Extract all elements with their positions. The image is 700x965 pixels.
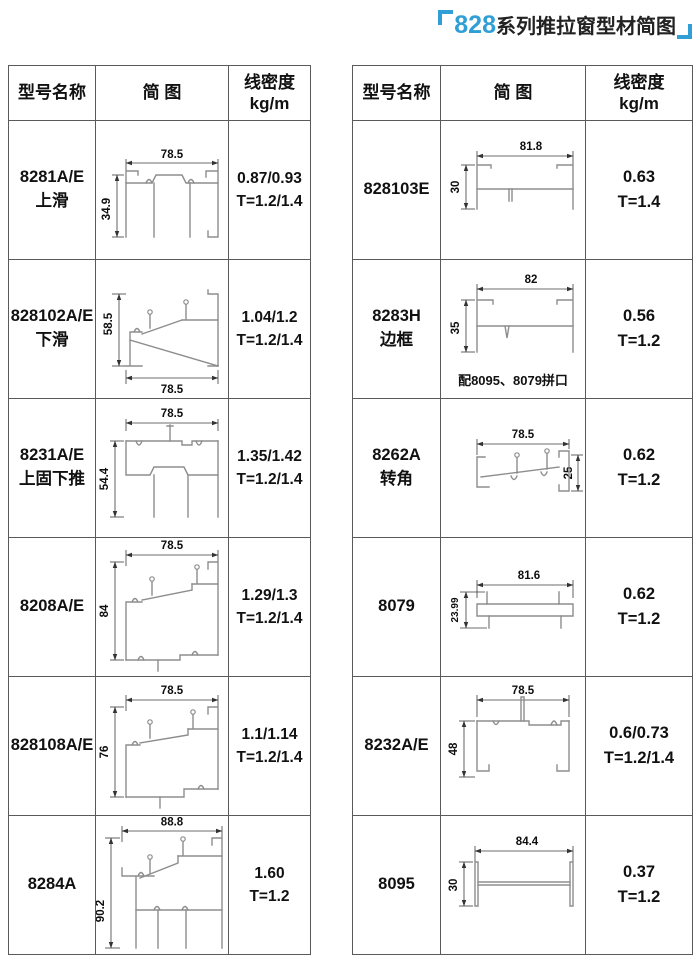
density-cell: 0.63 T=1.4 [586, 121, 693, 260]
density-cell: 1.29/1.3 T=1.2/1.4 [229, 538, 311, 677]
profile-diagram-828103: 81.8 30 [441, 121, 585, 259]
thickness-value: T=1.2 [249, 885, 289, 908]
profile-outline [477, 592, 573, 628]
thickness-value: T=1.2 [618, 885, 661, 910]
height-dim-label: 58.5 [103, 312, 115, 335]
profile-outline [126, 425, 218, 517]
height-dim-label: 30 [448, 879, 460, 892]
density-value: 1.04/1.2 [241, 306, 297, 329]
density-cell: 0.87/0.93 T=1.2/1.4 [229, 121, 311, 260]
model-name: 8281A/E [20, 166, 84, 190]
density-cell: 0.62 T=1.2 [586, 399, 693, 538]
density-cell: 0.56 T=1.2 [586, 260, 693, 399]
profile-diagram-8284: 88.8 90.2 [96, 816, 228, 954]
dimension-lines [112, 294, 218, 384]
diagram-cell: 78.5 25 [441, 399, 586, 538]
thickness-value: T=1.2 [618, 329, 661, 354]
title-corner-left-icon [438, 10, 453, 25]
page-title: 828系列推拉窗型材简图 [438, 10, 692, 44]
dimension-lines [459, 695, 569, 777]
title-corner-right-icon [677, 24, 692, 39]
header-density-label: 线密度 [614, 72, 665, 93]
header-model: 型号名称 [9, 66, 96, 121]
density-cell: 0.37 T=1.2 [586, 816, 693, 955]
height-dim-label: 84 [99, 604, 111, 617]
thickness-value: T=1.2 [618, 468, 661, 493]
model-subtitle: 上固下推 [19, 468, 85, 492]
header-density-unit: kg/m [619, 93, 659, 114]
profile-outline [124, 290, 218, 366]
width-dim-label: 78.5 [512, 429, 535, 441]
header-diagram: 简 图 [96, 66, 229, 121]
width-dim-label: 78.5 [161, 685, 184, 697]
diagram-note: 配8095、8079拼口 [441, 370, 585, 389]
profile-diagram-8262: 78.5 25 [441, 399, 585, 537]
dimension-lines [105, 826, 222, 948]
model-cell: 8283H 边框 [353, 260, 441, 399]
density-value: 0.62 [623, 443, 655, 468]
thickness-value: T=1.2/1.4 [237, 607, 303, 630]
diagram-cell: 78.5 48 [441, 677, 586, 816]
thickness-value: T=1.2/1.4 [237, 468, 303, 491]
profile-diagram-8232: 78.5 48 [441, 677, 585, 815]
diagram-cell: 82 35 配8095、8079拼口 [441, 260, 586, 399]
model-cell: 8079 [353, 538, 441, 677]
profile-diagram-8231: 78.5 54.4 [96, 399, 228, 537]
header-density-unit: kg/m [250, 93, 290, 114]
density-value: 1.29/1.3 [241, 584, 297, 607]
profile-diagram-828108: 78.5 76 [96, 677, 228, 815]
model-cell: 8232A/E [353, 677, 441, 816]
width-dim-label: 78.5 [512, 685, 535, 697]
width-dim-label: 78.5 [161, 540, 184, 552]
diagram-cell: 78.5 84 [96, 538, 229, 677]
width-dim-label: 81.8 [520, 141, 543, 153]
height-dim-label: 30 [450, 181, 462, 194]
model-name: 828103E [363, 178, 429, 202]
model-cell: 828102A/E 下滑 [9, 260, 96, 399]
height-dim-label: 35 [450, 321, 462, 334]
density-value: 1.35/1.42 [237, 445, 302, 468]
header-model: 型号名称 [353, 66, 441, 121]
model-subtitle: 上滑 [36, 190, 69, 214]
model-name: 8232A/E [364, 734, 428, 758]
density-value: 1.1/1.14 [241, 723, 297, 746]
width-dim-label: 78.5 [161, 408, 184, 420]
height-dim-label: 90.2 [96, 900, 107, 922]
model-name: 8262A [372, 444, 421, 468]
diagram-cell: 58.5 78.5 [96, 260, 229, 399]
dimension-lines [459, 846, 573, 906]
profile-outline [126, 562, 218, 671]
density-value: 0.87/0.93 [237, 167, 302, 190]
width-dim-label: 81.6 [518, 570, 540, 582]
profile-outline [126, 171, 218, 237]
diagram-cell: 78.5 34.9 [96, 121, 229, 260]
profile-diagram-8281: 78.5 34.9 [96, 121, 228, 259]
model-subtitle: 边框 [380, 329, 413, 353]
profile-diagram-8208: 78.5 84 [96, 538, 228, 676]
profile-outline [126, 707, 218, 808]
model-cell: 8284A [9, 816, 96, 955]
thickness-value: T=1.2/1.4 [237, 329, 303, 352]
model-cell: 828103E [353, 121, 441, 260]
density-value: 0.6/0.73 [609, 721, 669, 746]
density-value: 0.63 [623, 165, 655, 190]
height-dim-label: 23.99 [450, 597, 461, 622]
profile-outline [122, 837, 222, 948]
model-cell: 828108A/E [9, 677, 96, 816]
height-dim-label: 48 [448, 742, 460, 755]
thickness-value: T=1.2/1.4 [237, 190, 303, 213]
header-density: 线密度 kg/m [229, 66, 311, 121]
thickness-value: T=1.2/1.4 [604, 746, 674, 771]
profile-outline [477, 449, 569, 491]
density-cell: 1.60 T=1.2 [229, 816, 311, 955]
profile-diagram-8095: 84.4 30 [441, 816, 585, 954]
model-subtitle: 下滑 [36, 329, 69, 353]
density-value: 0.62 [623, 582, 655, 607]
height-dim-label: 54.4 [99, 467, 111, 490]
model-name: 8284A [28, 873, 77, 897]
diagram-cell: 81.8 30 [441, 121, 586, 260]
height-dim-label: 34.9 [101, 198, 113, 220]
model-subtitle: 转角 [380, 468, 413, 492]
thickness-value: T=1.2/1.4 [237, 746, 303, 769]
model-name: 828108A/E [11, 734, 94, 758]
model-cell: 8281A/E 上滑 [9, 121, 96, 260]
header-density: 线密度 kg/m [586, 66, 693, 121]
density-cell: 0.62 T=1.2 [586, 538, 693, 677]
model-name: 8231A/E [20, 444, 84, 468]
title-series: 828 [454, 11, 496, 39]
model-cell: 8231A/E 上固下推 [9, 399, 96, 538]
dimension-lines [461, 151, 573, 209]
right-profile-table: 型号名称 简 图 线密度 kg/m 828103E 81.8 30 [352, 65, 693, 955]
density-cell: 0.6/0.73 T=1.2/1.4 [586, 677, 693, 816]
width-dim-label: 78.5 [161, 384, 184, 396]
diagram-cell: 78.5 54.4 [96, 399, 229, 538]
model-name: 8095 [378, 873, 415, 897]
title-text: 系列推拉窗型材简图 [496, 16, 676, 38]
diagram-cell: 81.6 23.99 [441, 538, 586, 677]
density-cell: 1.35/1.42 T=1.2/1.4 [229, 399, 311, 538]
density-cell: 1.04/1.2 T=1.2/1.4 [229, 260, 311, 399]
diagram-cell: 78.5 76 [96, 677, 229, 816]
density-value: 0.56 [623, 304, 655, 329]
dimension-lines [461, 284, 573, 352]
left-profile-table: 型号名称 简 图 线密度 kg/m 8281A/E 上滑 78.5 34.9 [8, 65, 311, 955]
model-name: 828102A/E [11, 305, 94, 329]
thickness-value: T=1.2 [618, 607, 661, 632]
height-dim-label: 76 [99, 746, 111, 759]
profile-outline [477, 697, 569, 771]
model-cell: 8095 [353, 816, 441, 955]
profile-diagram-8079: 81.6 23.99 [441, 538, 585, 676]
profile-outline [477, 300, 573, 352]
density-cell: 1.1/1.14 T=1.2/1.4 [229, 677, 311, 816]
model-cell: 8208A/E [9, 538, 96, 677]
header-diagram: 简 图 [441, 66, 586, 121]
density-value: 1.60 [254, 862, 284, 885]
model-name: 8283H [372, 305, 421, 329]
profile-outline [475, 862, 573, 906]
width-dim-label: 82 [525, 274, 538, 286]
model-name: 8079 [378, 595, 415, 619]
header-density-label: 线密度 [244, 72, 295, 93]
profile-diagram-828102: 58.5 78.5 [96, 260, 228, 398]
diagram-cell: 88.8 90.2 [96, 816, 229, 955]
density-value: 0.37 [623, 860, 655, 885]
model-name: 8208A/E [20, 595, 84, 619]
thickness-value: T=1.4 [618, 190, 661, 215]
dimension-lines [477, 439, 583, 491]
width-dim-label: 78.5 [161, 149, 184, 161]
profile-outline [477, 165, 573, 209]
diagram-cell: 84.4 30 [441, 816, 586, 955]
width-dim-label: 88.8 [161, 817, 184, 829]
model-cell: 8262A 转角 [353, 399, 441, 538]
width-dim-label: 84.4 [516, 836, 539, 848]
